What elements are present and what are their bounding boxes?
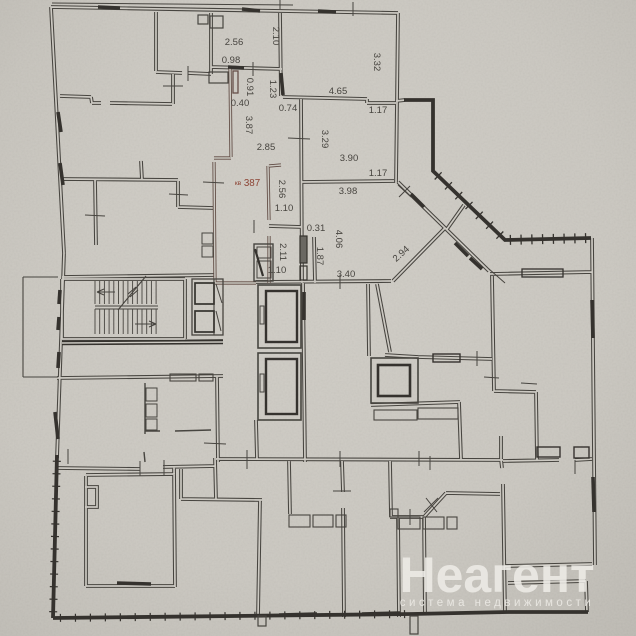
svg-text:0.40: 0.40 xyxy=(231,98,250,109)
svg-text:2.85: 2.85 xyxy=(257,142,276,153)
svg-text:0.91: 0.91 xyxy=(244,78,255,97)
svg-text:1.10: 1.10 xyxy=(268,265,287,276)
svg-text:3.29: 3.29 xyxy=(319,130,330,149)
svg-text:2.11: 2.11 xyxy=(277,243,288,261)
svg-text:система недвижимости: система недвижимости xyxy=(400,597,595,609)
svg-text:Неагент: Неагент xyxy=(399,547,594,603)
svg-text:1.87: 1.87 xyxy=(314,247,325,266)
svg-text:4.65: 4.65 xyxy=(329,86,348,97)
svg-text:387: 387 xyxy=(244,178,260,189)
svg-text:1.17: 1.17 xyxy=(369,168,388,179)
svg-text:3.87: 3.87 xyxy=(243,116,254,135)
svg-text:0.74: 0.74 xyxy=(279,103,298,114)
svg-text:3.98: 3.98 xyxy=(339,186,358,197)
svg-text:4.06: 4.06 xyxy=(333,230,344,249)
svg-text:3.32: 3.32 xyxy=(371,53,382,72)
svg-text:2.56: 2.56 xyxy=(276,180,287,199)
svg-text:3.90: 3.90 xyxy=(340,153,359,164)
svg-text:2.56: 2.56 xyxy=(225,37,244,48)
svg-text:2.10: 2.10 xyxy=(270,27,281,46)
svg-text:1.10: 1.10 xyxy=(275,203,294,214)
svg-text:1.23: 1.23 xyxy=(267,80,278,99)
svg-text:1.17: 1.17 xyxy=(369,105,388,116)
svg-text:3.40: 3.40 xyxy=(337,269,356,280)
svg-text:кв: кв xyxy=(235,180,242,187)
svg-text:0.31: 0.31 xyxy=(307,223,326,234)
svg-text:0.98: 0.98 xyxy=(222,55,241,66)
